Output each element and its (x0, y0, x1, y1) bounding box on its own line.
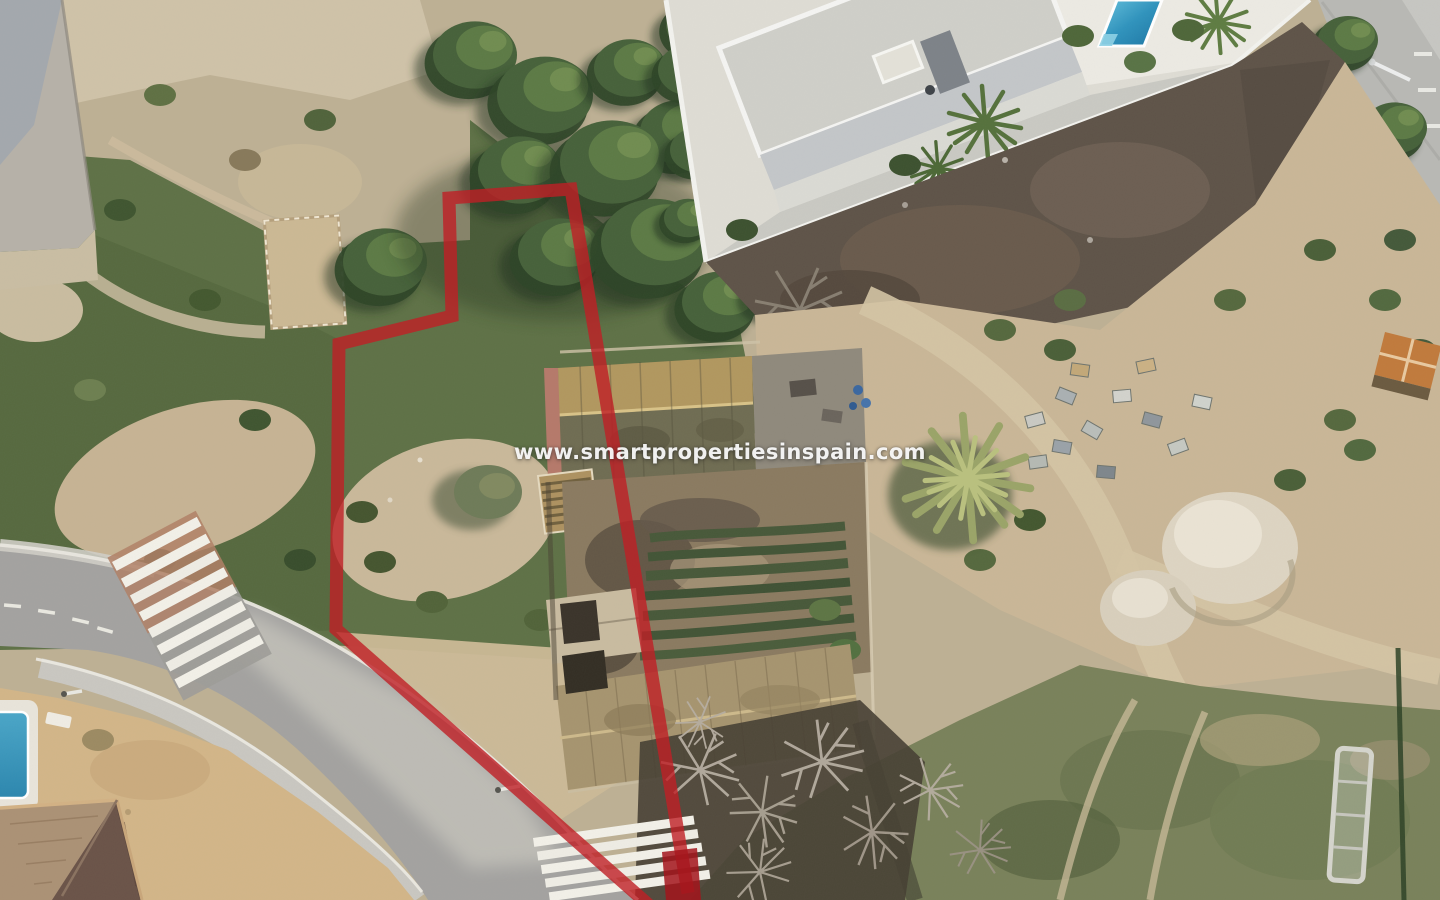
photo-grain (0, 0, 1440, 900)
plot-boundary-end-marker (662, 848, 701, 900)
aerial-photo-canvas (0, 0, 1440, 900)
aerial-photo: www.smartpropertiesinspain.com (0, 0, 1440, 900)
